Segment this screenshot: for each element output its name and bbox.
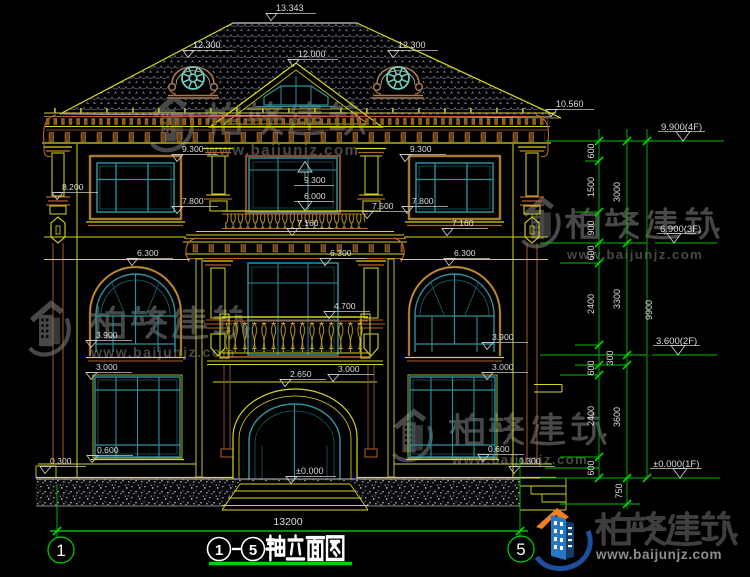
svg-text:1: 1 <box>215 542 223 559</box>
svg-text:1: 1 <box>56 541 65 560</box>
svg-text:8.200: 8.200 <box>62 182 84 192</box>
svg-text:6.300: 6.300 <box>454 248 476 258</box>
svg-text:600: 600 <box>586 360 596 375</box>
svg-text:2.650: 2.650 <box>290 369 312 379</box>
svg-text:9.300: 9.300 <box>410 144 432 154</box>
svg-text:300: 300 <box>605 350 615 365</box>
svg-text:13.343: 13.343 <box>276 3 304 13</box>
svg-text:4.700: 4.700 <box>334 301 356 311</box>
svg-text:7.160: 7.160 <box>452 218 474 228</box>
svg-text:0.600: 0.600 <box>97 445 119 455</box>
svg-text:13200: 13200 <box>273 516 302 528</box>
svg-text:5: 5 <box>249 542 257 559</box>
svg-text:12.000: 12.000 <box>298 49 326 59</box>
svg-text:12.300: 12.300 <box>193 40 221 50</box>
svg-text:9.300: 9.300 <box>182 144 204 154</box>
svg-text:6.000: 6.000 <box>304 191 326 201</box>
svg-text:7.160: 7.160 <box>297 218 319 228</box>
svg-text:7.800: 7.800 <box>182 196 204 206</box>
svg-text:0.600: 0.600 <box>488 444 510 454</box>
svg-text:5: 5 <box>516 540 525 559</box>
svg-text:3.000: 3.000 <box>338 364 360 374</box>
svg-text:3600: 3600 <box>612 407 622 427</box>
svg-text:3.900: 3.900 <box>492 332 514 342</box>
svg-text:900: 900 <box>586 220 596 235</box>
svg-text:7.800: 7.800 <box>412 196 434 206</box>
svg-text:12.300: 12.300 <box>398 40 426 50</box>
svg-text:3.900: 3.900 <box>96 330 118 340</box>
svg-text:9.300: 9.300 <box>304 175 326 185</box>
svg-text:9900: 9900 <box>644 300 654 320</box>
svg-text:3.000: 3.000 <box>492 362 514 372</box>
svg-text:2400: 2400 <box>586 406 596 426</box>
svg-text:750: 750 <box>614 483 624 498</box>
svg-text:600: 600 <box>586 245 596 260</box>
svg-text:3300: 3300 <box>612 289 622 309</box>
svg-text:600: 600 <box>586 143 596 158</box>
svg-text:600: 600 <box>586 460 596 475</box>
svg-text:www.baijunjz.com: www.baijunjz.com <box>595 547 722 562</box>
svg-text:7.500: 7.500 <box>372 201 394 211</box>
svg-text:1500: 1500 <box>586 177 596 197</box>
svg-text:6.300: 6.300 <box>137 248 159 258</box>
svg-text:2400: 2400 <box>586 294 596 314</box>
svg-text:0.300: 0.300 <box>519 456 541 466</box>
svg-text:10.560: 10.560 <box>556 99 584 109</box>
svg-text:3.000: 3.000 <box>96 362 118 372</box>
svg-text:3000: 3000 <box>612 182 622 202</box>
svg-text:0.300: 0.300 <box>50 456 72 466</box>
svg-text:6.300: 6.300 <box>330 248 352 258</box>
svg-text:±0.000: ±0.000 <box>296 466 323 476</box>
